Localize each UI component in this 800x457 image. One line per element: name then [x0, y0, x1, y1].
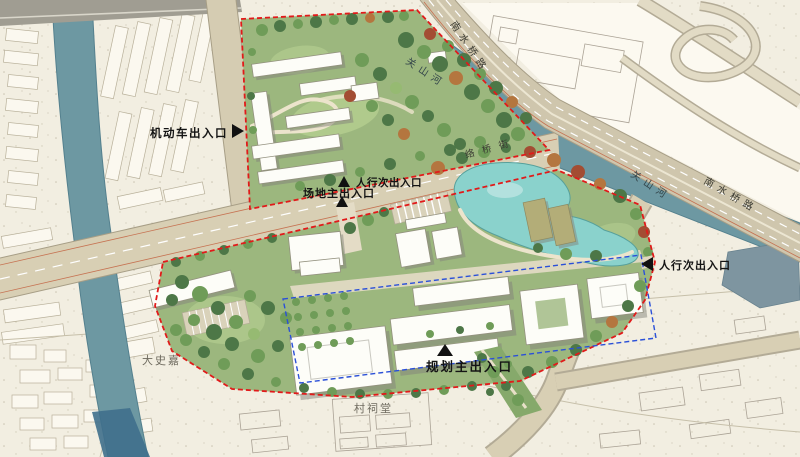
label-dashijia: 大史嘉	[142, 353, 181, 367]
site-plan: 机动车出入口 人行次出入口 场地主出入口 人行次出入口 规划主出入口 南水桥路 …	[0, 0, 800, 457]
label-motor-entrance: 机动车出入口	[150, 126, 228, 140]
label-cun-citang: 村祠堂	[354, 401, 393, 415]
label-planned-main-entrance: 规划主出入口	[426, 359, 513, 374]
label-ped-secondary-east: 人行次出入口	[659, 258, 731, 272]
label-site-main-entrance: 场地主出入口	[303, 186, 375, 200]
site-plan-canvas: 机动车出入口 人行次出入口 场地主出入口 人行次出入口 规划主出入口 南水桥路 …	[0, 0, 800, 457]
